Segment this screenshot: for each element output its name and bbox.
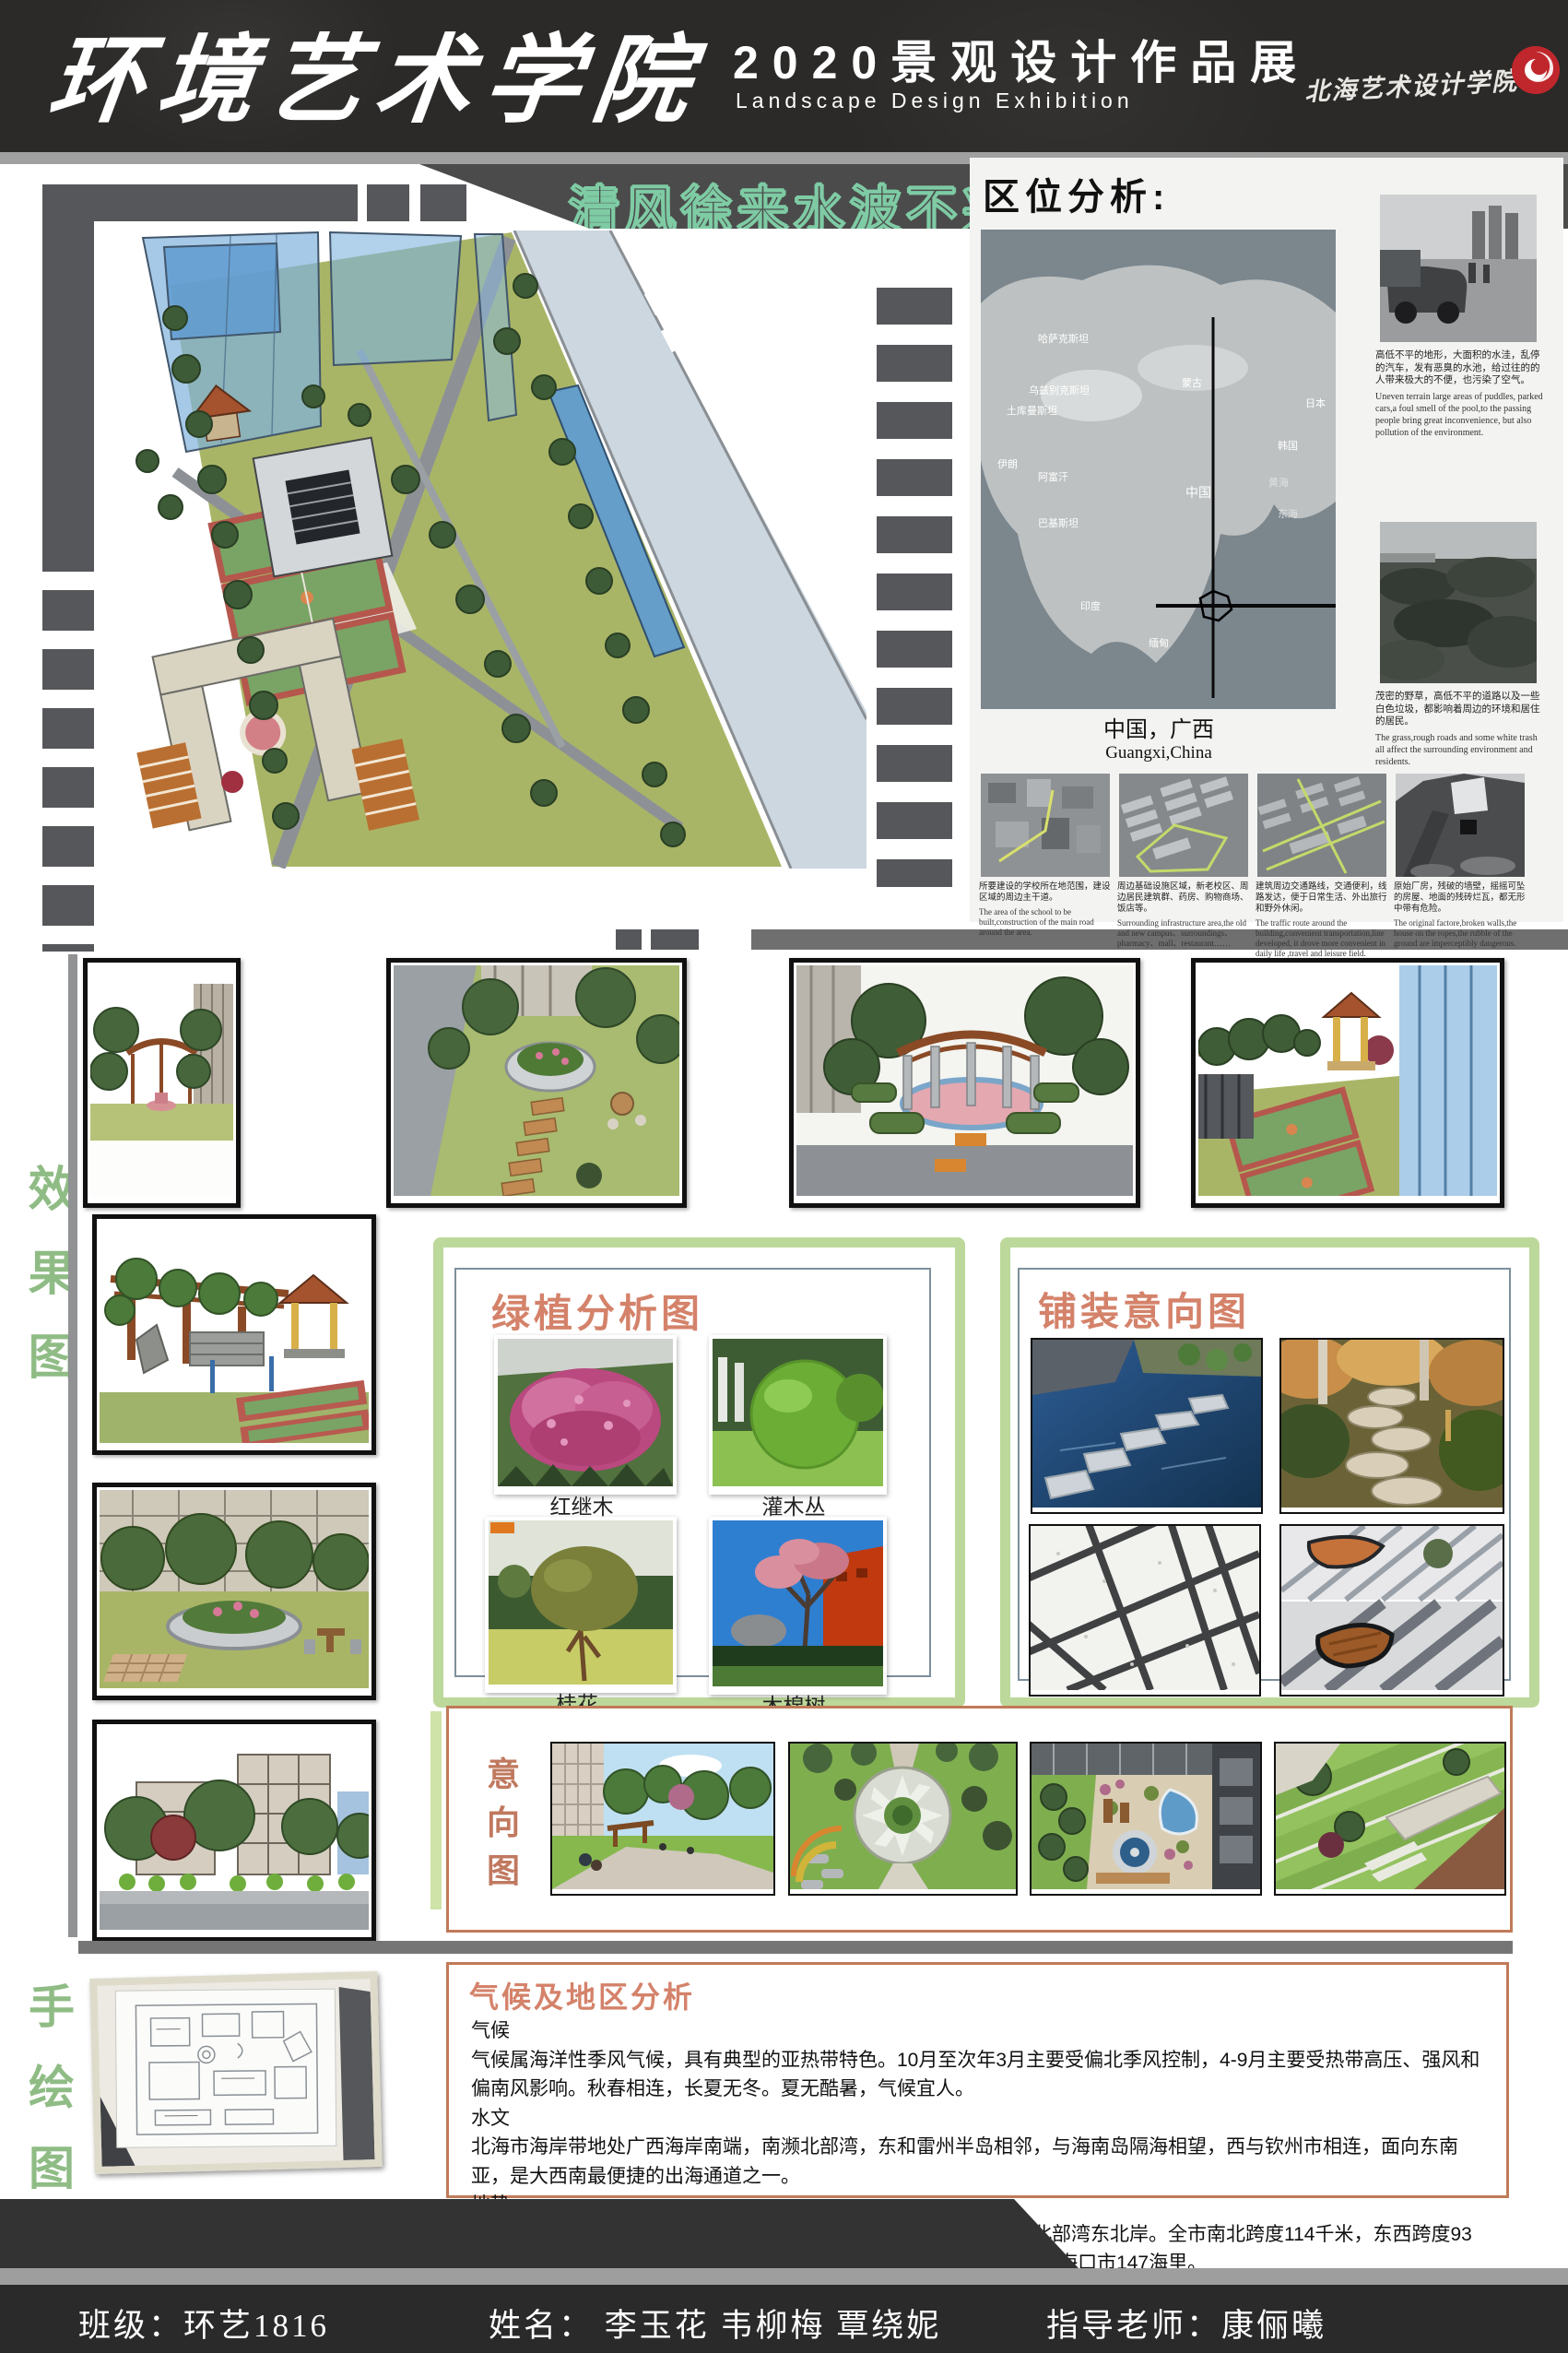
map-label: 印度: [1080, 599, 1101, 612]
satellite-photo-2: [1119, 774, 1248, 877]
map-label: 缅甸: [1149, 636, 1169, 649]
site-condition-note: 茂密的野草，高低不平的道路以及一些白色垃圾，都影响着周边的环境和居住的居民。 T…: [1375, 691, 1549, 768]
note-cn: 周边基础设施区域，新老校区、周边居民建筑群、药房、购物商场、饭店等。: [1117, 882, 1252, 916]
sketch-polaroid-frame: [89, 1971, 382, 2174]
paving-box: 铺装意向图: [1000, 1237, 1539, 1708]
map-label: 乌兹别克斯坦: [1029, 384, 1090, 396]
map-caption-cn: 中国，广西: [979, 711, 1338, 743]
intention-photo-courtyard: [1030, 1742, 1262, 1896]
paving-photo-striped: [1279, 1524, 1504, 1697]
intention-photo-terraced-lawn: [1274, 1742, 1506, 1896]
footer-class: 班级：环艺1816: [78, 2300, 329, 2347]
map-label: 蒙古: [1182, 377, 1202, 389]
map-label: 伊朗: [997, 458, 1018, 470]
note-cn: 高低不平的地形，大面积的水洼，乱停的汽车，发有恶臭的水池，给过往的的人带来极大的…: [1375, 349, 1549, 387]
school-calligraphy-title: 环境艺术学院: [42, 2, 713, 141]
location-analysis-title: 区位分析:: [983, 167, 1170, 220]
deco-dash: [651, 929, 699, 950]
institute-swirl-logo-icon: [1510, 44, 1562, 96]
plant-photo-hongjimu: [494, 1335, 677, 1495]
note-en: Surrounding infrastructure area,the old …: [1117, 918, 1252, 950]
footer-names: 姓名： 李玉花 韦柳梅 覃绕妮: [489, 2300, 941, 2347]
deco-dash: [616, 929, 642, 950]
ruins-photo: [1396, 774, 1525, 877]
plant-photo-shrub: [709, 1335, 887, 1495]
climate-title: 气候及地区分析: [469, 1974, 695, 2016]
intention-box: 意向图: [446, 1706, 1513, 1933]
header-band: 环境艺术学院 2020景观设计作品展 Landscape Design Exhi…: [0, 0, 1568, 152]
deco-dash: [367, 184, 409, 221]
note-cn: 建筑周边交通路线，交通便利，线路发达，便于日常生活、外出旅行和野外休闲。: [1256, 882, 1390, 916]
satellite-photo-1: [981, 774, 1110, 877]
map-label: 韩国: [1278, 439, 1298, 452]
intention-photo-circle-plaza: [788, 1742, 1018, 1896]
climate-box: 气候及地区分析 气候 气候属海洋性季风气候，具有典型的亚热带特色。10月至次年3…: [446, 1962, 1509, 2198]
exhibition-title-en: Landscape Design Exhibition: [736, 89, 1134, 113]
map-label: 东海: [1278, 507, 1298, 520]
map-caption: 中国，广西 Guangxi,China: [979, 711, 1338, 763]
plant-photo-osmanthus: [485, 1517, 677, 1693]
note-en: The grass,rough roads and some white tra…: [1375, 732, 1549, 768]
site-note: 周边基础设施区域，新老校区、周边居民建筑群、药房、购物商场、饭店等。 Surro…: [1117, 882, 1252, 949]
separator-bar-lower: [78, 1941, 1513, 1954]
render-courts-tower: [1191, 958, 1504, 1208]
exhibition-poster: 环境艺术学院 2020景观设计作品展 Landscape Design Exhi…: [0, 0, 1568, 2353]
site-note: 所要建设的学校所在地范围，建设区域的周边主干道。 The area of the…: [979, 882, 1114, 939]
paving-photo-stone-path: [1279, 1338, 1504, 1514]
green-analysis-box: 绿植分析图: [433, 1237, 965, 1708]
site-condition-note: 高低不平的地形，大面积的水洼，乱停的汽车，发有恶臭的水池，给过往的的人带来极大的…: [1375, 349, 1549, 439]
green-analysis-title: 绿植分析图: [491, 1283, 703, 1339]
location-map: 哈萨克斯坦 乌兹别克斯坦 土库曼斯坦 伊朗 阿富汗 巴基斯坦 印度 缅甸 蒙古 …: [981, 230, 1336, 709]
vertical-divider-bar: [68, 954, 77, 1937]
map-label: 黄海: [1268, 476, 1289, 489]
deco-dash: [420, 184, 466, 221]
render-circular-pavilion: [789, 958, 1140, 1208]
footer-advisor: 指导老师：康俪曦: [1046, 2300, 1326, 2347]
render-building-elevation: [92, 1720, 376, 1942]
footer-bar: 班级：环艺1816 姓名： 李玉花 韦柳梅 覃绕妮 指导老师：康俪曦: [0, 2285, 1568, 2353]
render-pergola-fountain: [83, 958, 241, 1208]
intention-photo-residential-garden: [550, 1742, 775, 1896]
map-label: 中国: [1185, 485, 1211, 500]
render-garden-path: [386, 958, 687, 1208]
hand-sketch-photo: [92, 1975, 380, 2170]
site-plan-drawing: [83, 231, 867, 869]
note-cn: 原始厂房，残破的墙壁，摇摇可坠的房屋、地面的残砖烂瓦，都无形中带有危险。: [1394, 882, 1532, 916]
paving-photo-geometric: [1029, 1524, 1261, 1697]
plant-photo-kapok: [709, 1517, 887, 1695]
note-cn: 茂密的野草，高低不平的道路以及一些白色垃圾，都影响着周边的环境和居住的居民。: [1375, 691, 1549, 728]
satellite-photo-3: [1257, 774, 1386, 877]
note-en: Uneven terrain large areas of puddles, p…: [1375, 391, 1549, 439]
plant-label: 灌木丛: [734, 1489, 854, 1520]
hand-sketch-label: 手绘图: [15, 1982, 81, 2225]
map-label: 巴基斯坦: [1038, 516, 1079, 529]
site-note: 建筑周边交通路线，交通便利，线路发达，便于日常生活、外出旅行和野外休闲。 The…: [1256, 882, 1390, 960]
note-en: The original factore,broken walls,the ho…: [1394, 918, 1532, 950]
render-round-planter: [92, 1483, 376, 1700]
note-en: The traffic route around the building,co…: [1256, 918, 1390, 960]
render-vine-pergola: [92, 1214, 376, 1455]
map-label: 阿富汗: [1038, 470, 1068, 483]
deco-dash-column-right: [877, 288, 952, 887]
note-en: The area of the school to be built,const…: [979, 907, 1114, 939]
paving-title: 铺装意向图: [1038, 1281, 1250, 1337]
intention-title: 意向图: [477, 1756, 525, 1901]
institute-signature: 北海艺术设计学院: [1303, 61, 1519, 108]
site-condition-photo-vegetation: [1380, 522, 1537, 683]
note-cn: 所要建设的学校所在地范围，建设区域的周边主干道。: [979, 882, 1114, 905]
exhibition-title-cn: 2020景观设计作品展: [733, 26, 1310, 92]
location-analysis-panel: 区位分析: 哈萨克斯坦 乌兹别克斯坦 土库曼斯坦 伊朗 阿富汗 巴基斯坦 印度 …: [970, 158, 1563, 922]
map-label: 土库曼斯坦: [1007, 404, 1057, 417]
site-note: 原始厂房，残破的墙壁，摇摇可坠的房屋、地面的残砖烂瓦，都无形中带有危险。 The…: [1394, 882, 1532, 949]
paving-photo-stepping-water: [1031, 1338, 1263, 1514]
footer-gray-bar: [0, 2268, 1568, 2285]
site-condition-photo-street: [1380, 195, 1537, 342]
plant-label: 红继木: [522, 1489, 642, 1520]
green-accent-strip: [430, 1711, 442, 1910]
map-label: 哈萨克斯坦: [1038, 332, 1089, 345]
site-plan-render: [83, 231, 867, 869]
map-caption-en: Guangxi,China: [979, 743, 1338, 763]
map-label: 日本: [1305, 396, 1326, 409]
